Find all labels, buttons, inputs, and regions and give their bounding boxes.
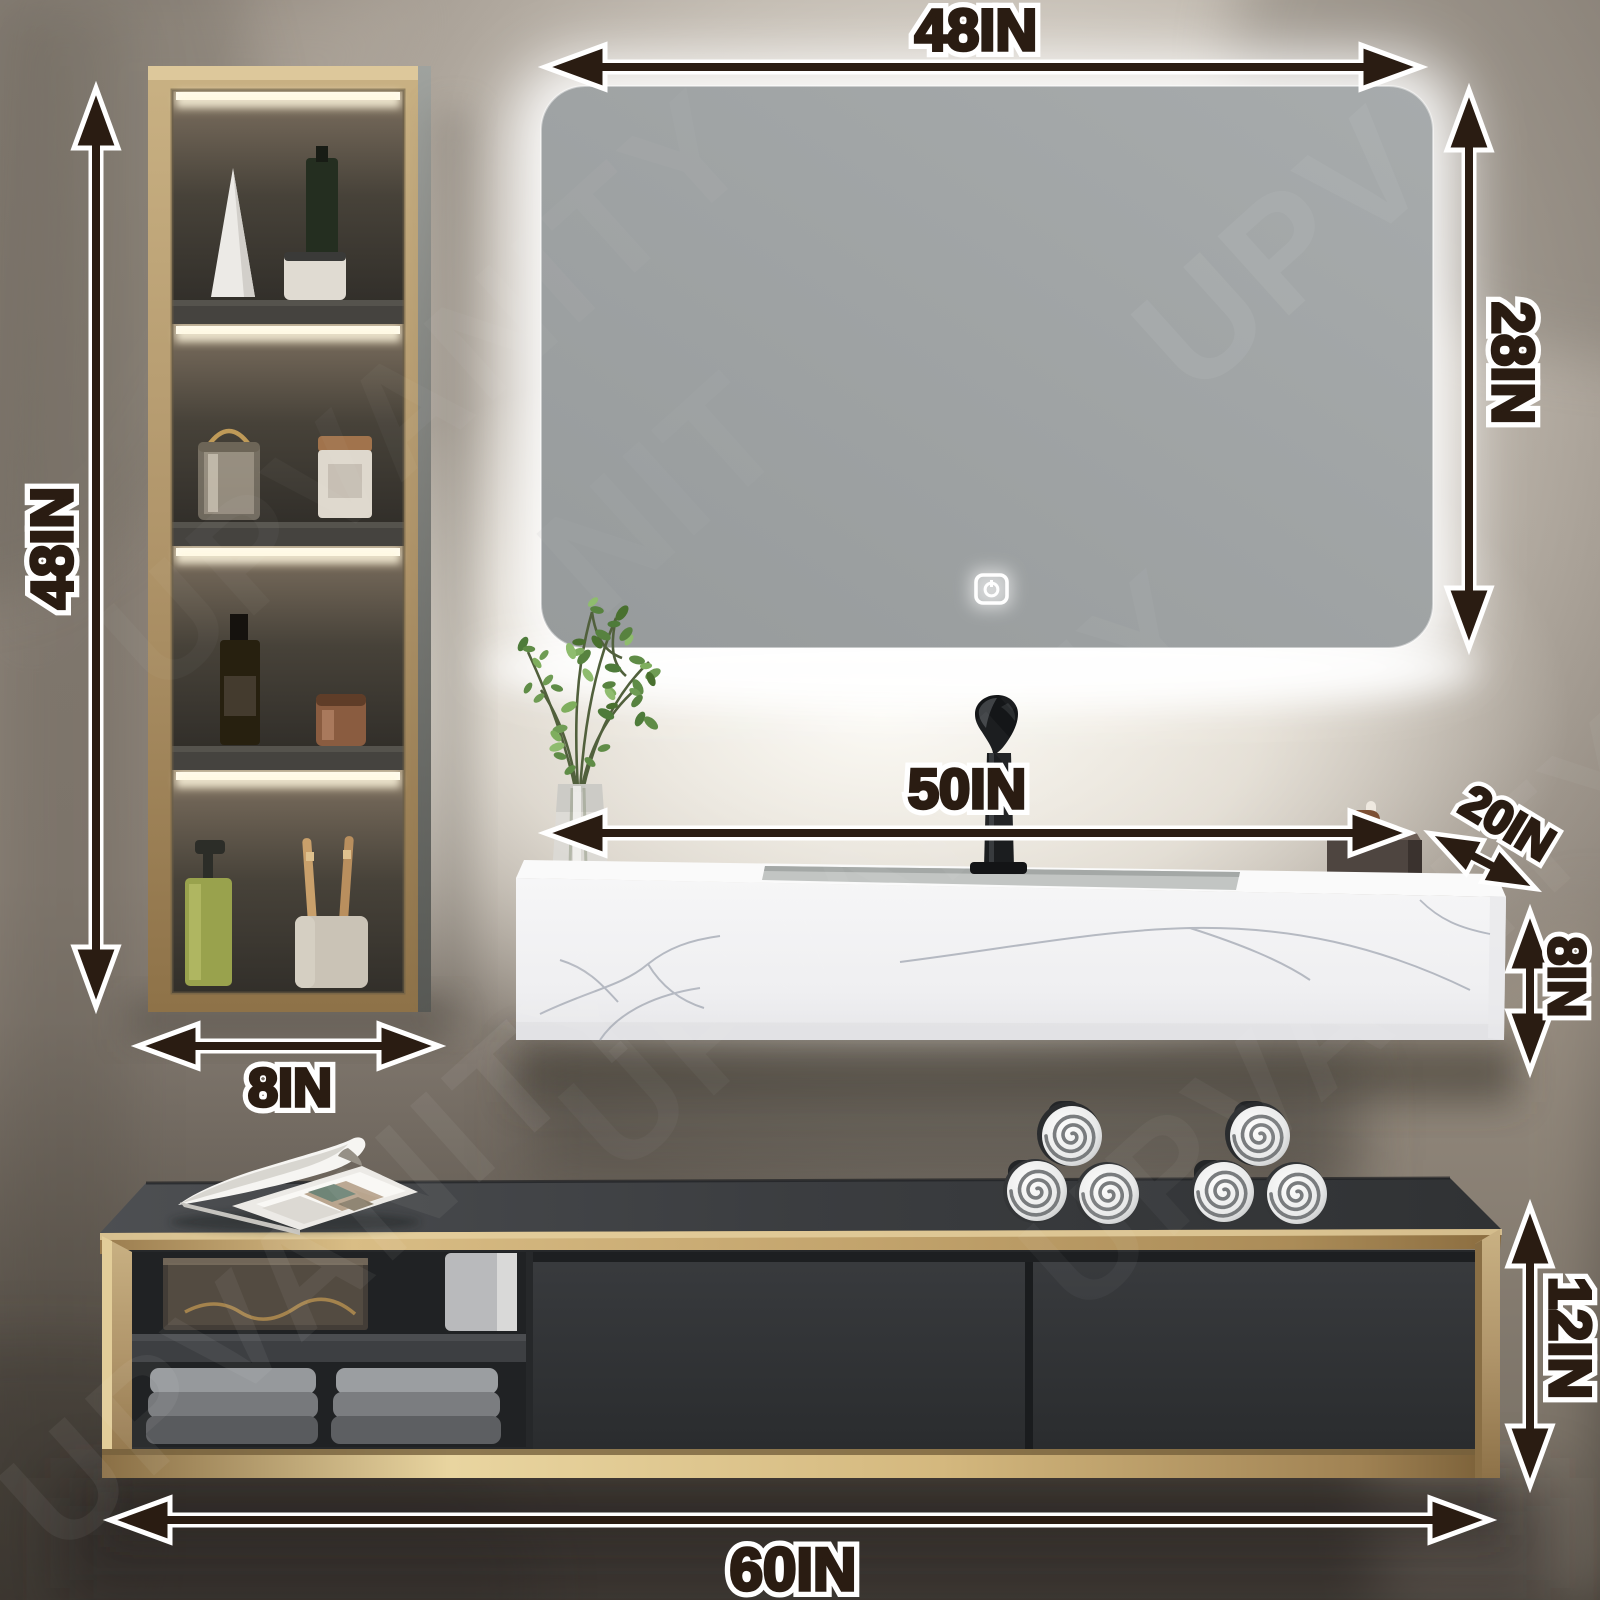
svg-text:12IN: 12IN	[1537, 1277, 1600, 1400]
svg-text:50IN: 50IN	[908, 757, 1026, 820]
svg-text:48IN: 48IN	[915, 0, 1038, 63]
svg-text:8IN: 8IN	[1537, 937, 1595, 1018]
svg-text:8IN: 8IN	[248, 1058, 332, 1118]
svg-text:60IN: 60IN	[730, 1536, 857, 1600]
svg-text:48IN: 48IN	[20, 487, 85, 610]
svg-text:28IN: 28IN	[1480, 302, 1545, 425]
